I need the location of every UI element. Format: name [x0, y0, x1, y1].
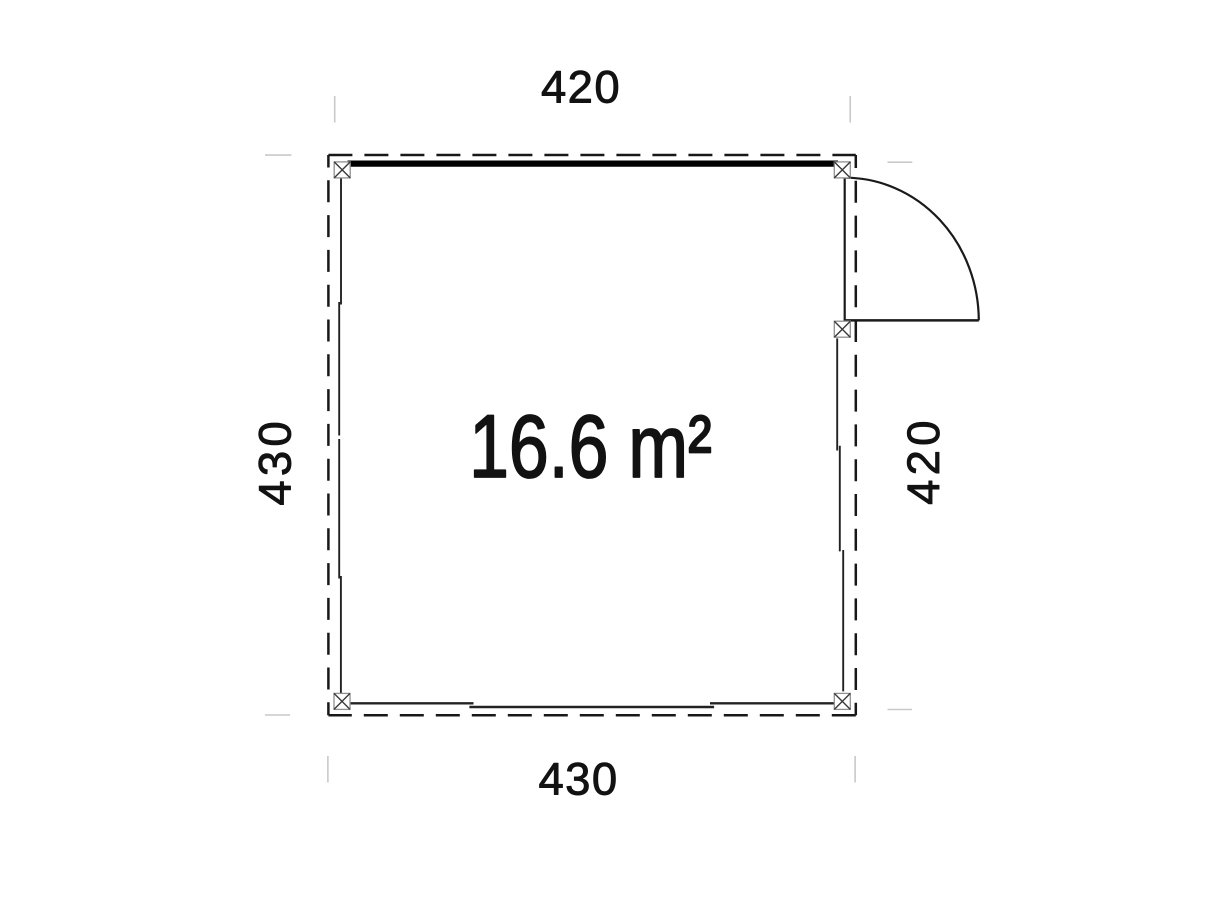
svg-text:16.6 m²: 16.6 m²	[469, 398, 712, 497]
svg-text:420: 420	[541, 62, 621, 113]
svg-text:420: 420	[898, 416, 949, 505]
svg-text:430: 430	[538, 753, 618, 804]
svg-text:430: 430	[250, 417, 301, 506]
